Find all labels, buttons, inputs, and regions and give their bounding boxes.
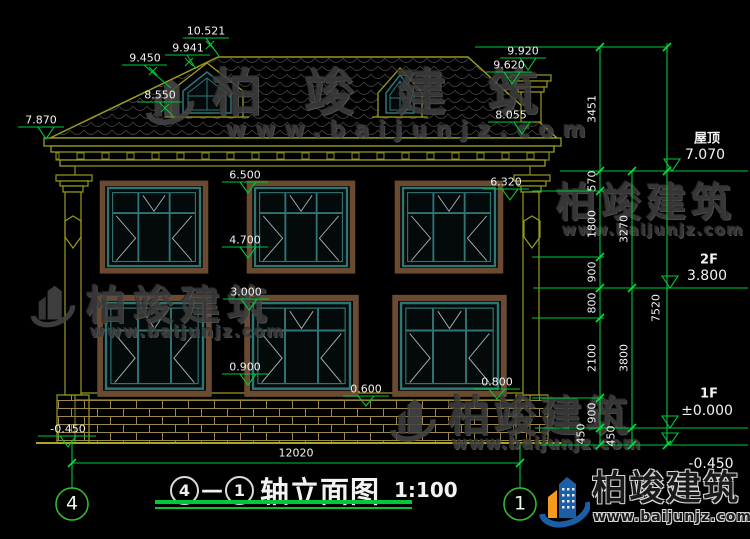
dim-f2-sill: 4.700 bbox=[229, 235, 261, 246]
dim-ridge: 10.521 bbox=[187, 26, 226, 37]
chain-dim: 900 bbox=[587, 403, 598, 424]
dim-dormer-eave: 8.550 bbox=[144, 90, 176, 101]
brand-logo-icon bbox=[536, 470, 590, 536]
dim-ground-left: -0.450 bbox=[50, 424, 85, 435]
dim-eave-left: 7.870 bbox=[25, 115, 57, 126]
level-value-f2: 3.800 bbox=[687, 269, 727, 283]
dim-f2-head-left: 6.500 bbox=[229, 170, 261, 181]
cad-elevation-canvas: 柏竣建筑 www.baijunjz.com 柏竣建筑 www.baijunjz.… bbox=[0, 0, 750, 539]
axis-number-1: 1 bbox=[514, 495, 526, 514]
leader-roof-slope bbox=[165, 55, 210, 69]
dim-f2-head-right: 6.320 bbox=[490, 177, 522, 188]
dimension-ticks bbox=[68, 43, 671, 467]
axis-number-4: 4 bbox=[66, 495, 78, 514]
chain-dim: 570 bbox=[587, 171, 598, 192]
drawing-title: 4 — 1 轴立面图 1:100 bbox=[170, 469, 458, 511]
brand-name: 柏竣建筑 bbox=[592, 472, 740, 507]
marker-f2-head-left bbox=[222, 182, 268, 193]
brand-logo-block: 柏竣建筑 www.baijunjz.com bbox=[536, 468, 750, 534]
level-label-f2: 2F bbox=[700, 254, 718, 267]
marker-plinth-left bbox=[343, 396, 389, 406]
dim-plinth-right: 0.800 bbox=[481, 377, 513, 388]
dim-roof-slope: 9.941 bbox=[172, 43, 204, 54]
marker-ground-left bbox=[38, 436, 96, 447]
chain-dim: 800 bbox=[587, 293, 598, 314]
chain-dim: 1800 bbox=[587, 210, 598, 238]
marker-plinth-right bbox=[474, 389, 520, 399]
dim-chimney-top: 9.920 bbox=[507, 46, 539, 57]
dim-chimney-cap: 9.620 bbox=[493, 60, 525, 71]
dim-f1-head: 3.000 bbox=[230, 287, 262, 298]
dim-dormer-ridge: 9.450 bbox=[129, 53, 161, 64]
brand-url: www.baijunjz.com bbox=[593, 510, 750, 524]
title-underline-thick bbox=[155, 500, 412, 504]
marker-f1-head bbox=[223, 299, 269, 310]
level-label-roof: 屋顶 bbox=[694, 133, 720, 146]
title-text: 轴立面图 bbox=[260, 469, 380, 511]
marker-eave-left bbox=[18, 127, 64, 139]
marker-f2-sill bbox=[222, 247, 268, 258]
chain-dim: 450 bbox=[576, 424, 587, 445]
title-dash: — bbox=[201, 478, 223, 503]
chain-dim: 2100 bbox=[587, 344, 598, 372]
dimension-annotations bbox=[0, 0, 750, 539]
dim-plinth-left: 0.600 bbox=[350, 384, 382, 395]
marker-chimney-cap bbox=[486, 72, 532, 84]
chain-lines-right bbox=[600, 43, 667, 445]
marker-f1-sill bbox=[222, 374, 268, 385]
chain-dim: 900 bbox=[587, 262, 598, 283]
chain-dim: 3451 bbox=[587, 95, 598, 123]
leader-dormer-eave bbox=[137, 102, 182, 116]
level-value-roof: 7.070 bbox=[685, 148, 725, 162]
level-value-f1: ±0.000 bbox=[681, 404, 733, 418]
level-label-f1: 1F bbox=[700, 388, 718, 401]
dim-f1-sill: 0.900 bbox=[229, 362, 261, 373]
dim-eave-right: 8.055 bbox=[495, 110, 527, 121]
marker-eave-right bbox=[488, 122, 534, 134]
marker-f2-head-right bbox=[483, 189, 529, 200]
chain-dim: 450 bbox=[606, 426, 617, 447]
dim-overall-width: 12020 bbox=[279, 448, 314, 459]
chain-dim-total-height: 7520 bbox=[651, 294, 662, 322]
chain-dim: 3800 bbox=[619, 344, 630, 372]
title-underline-thin bbox=[155, 507, 412, 509]
chain-dim: 3270 bbox=[619, 215, 630, 243]
title-scale: 1:100 bbox=[394, 478, 458, 502]
leader-dormer-ridge bbox=[122, 65, 171, 88]
